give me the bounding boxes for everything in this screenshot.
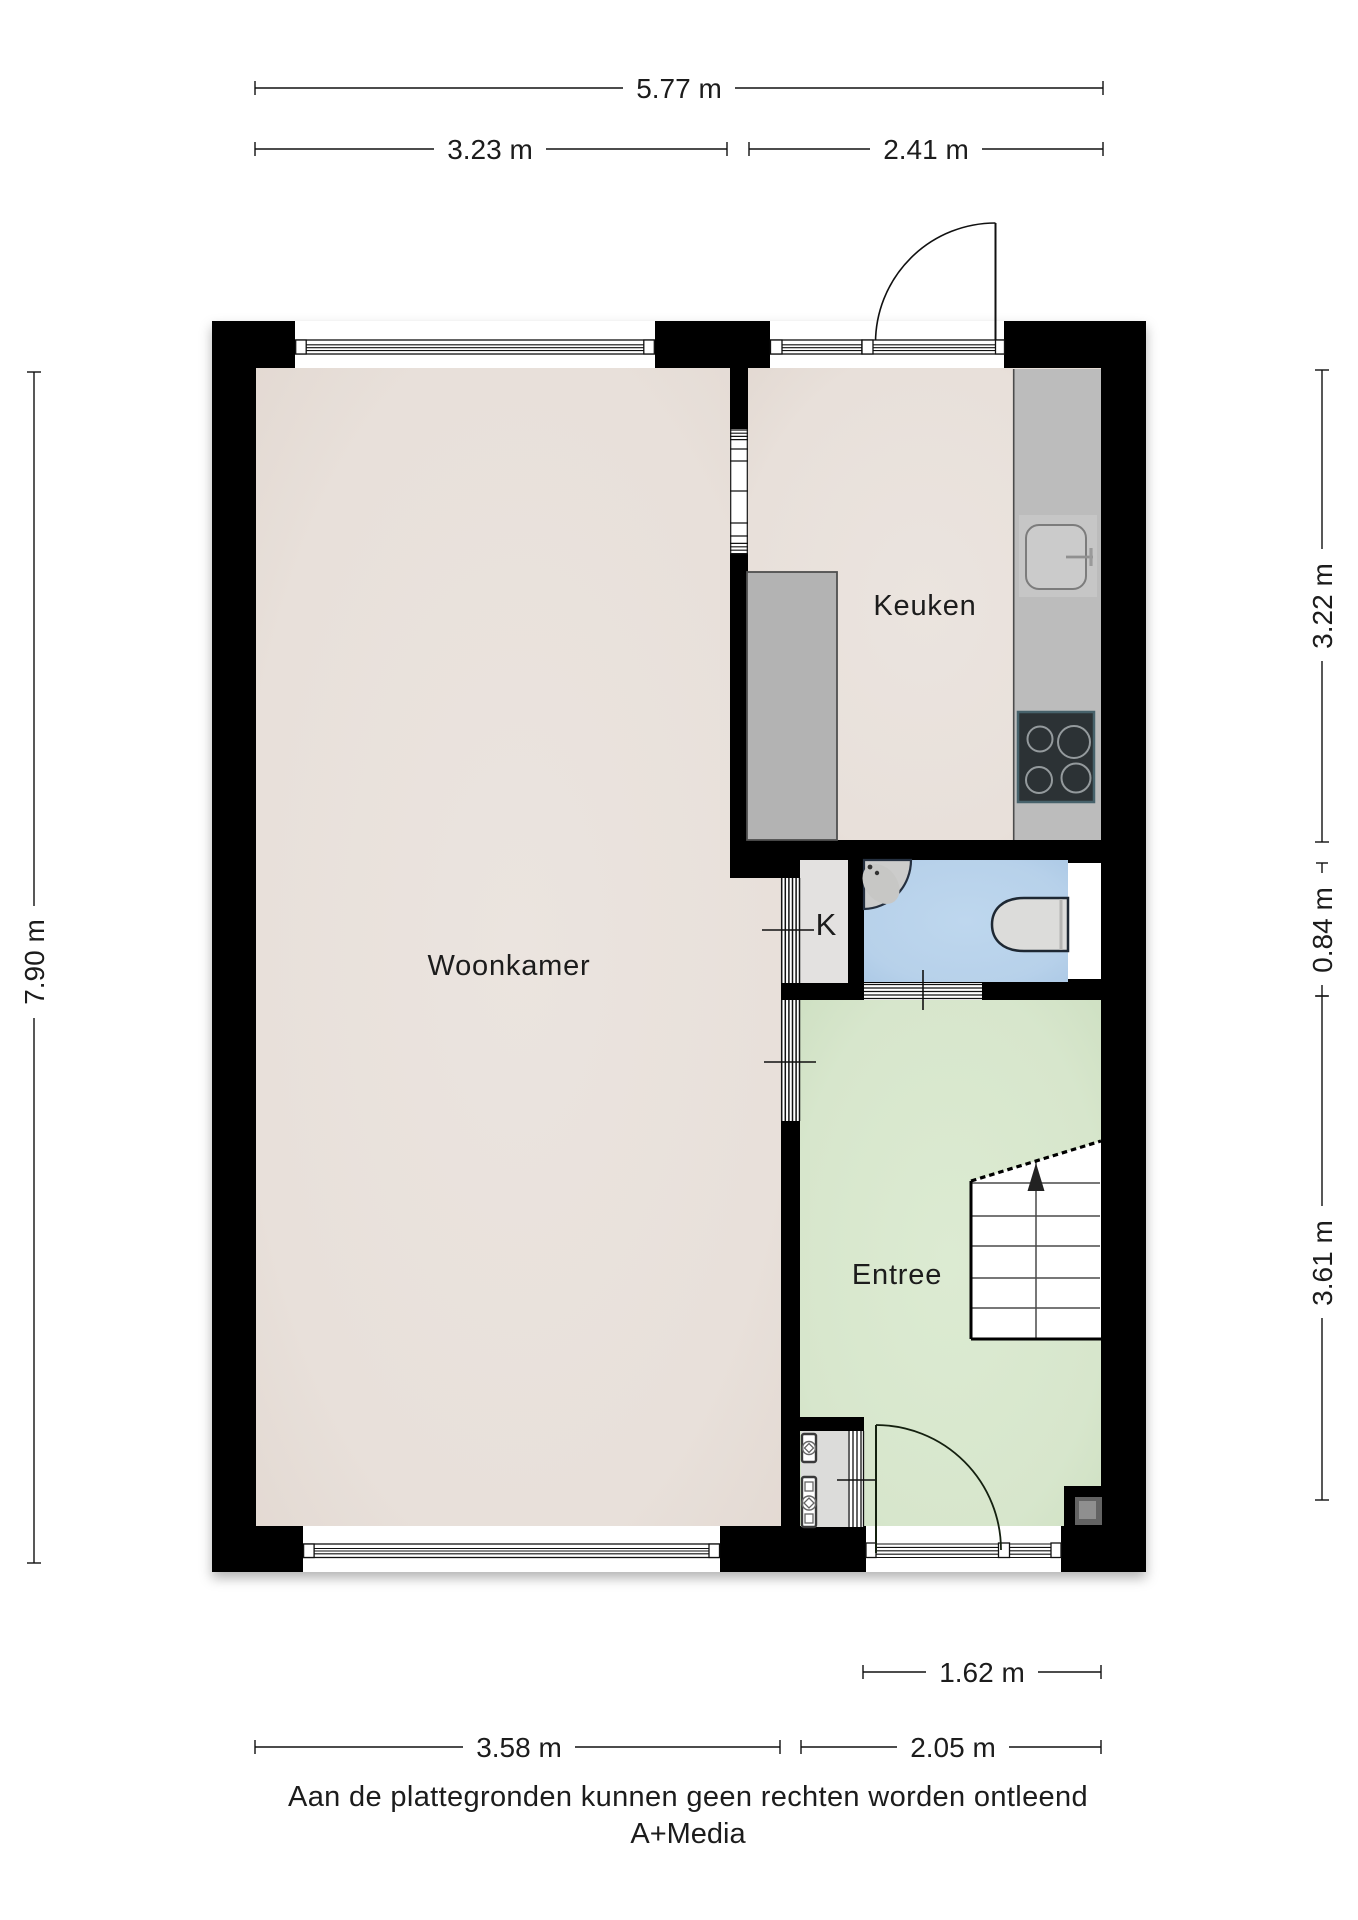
svg-text:5.77 m: 5.77 m bbox=[636, 73, 722, 104]
svg-text:K: K bbox=[816, 907, 837, 942]
svg-text:Aan de plattegronden kunnen ge: Aan de plattegronden kunnen geen rechten… bbox=[288, 1781, 1088, 1813]
svg-text:A+Media: A+Media bbox=[630, 1818, 746, 1850]
svg-text:3.58 m: 3.58 m bbox=[476, 1732, 562, 1763]
svg-text:Entree: Entree bbox=[852, 1259, 942, 1291]
svg-text:3.22 m: 3.22 m bbox=[1307, 563, 1338, 649]
svg-text:Woonkamer: Woonkamer bbox=[427, 950, 590, 982]
svg-text:0.84 m: 0.84 m bbox=[1307, 887, 1338, 973]
svg-text:Keuken: Keuken bbox=[873, 590, 976, 622]
svg-text:1.62 m: 1.62 m bbox=[939, 1657, 1025, 1688]
svg-text:3.23 m: 3.23 m bbox=[447, 134, 533, 165]
svg-text:2.41 m: 2.41 m bbox=[883, 134, 969, 165]
svg-text:3.61 m: 3.61 m bbox=[1307, 1220, 1338, 1306]
svg-text:2.05 m: 2.05 m bbox=[910, 1732, 996, 1763]
svg-text:7.90 m: 7.90 m bbox=[19, 919, 50, 1005]
